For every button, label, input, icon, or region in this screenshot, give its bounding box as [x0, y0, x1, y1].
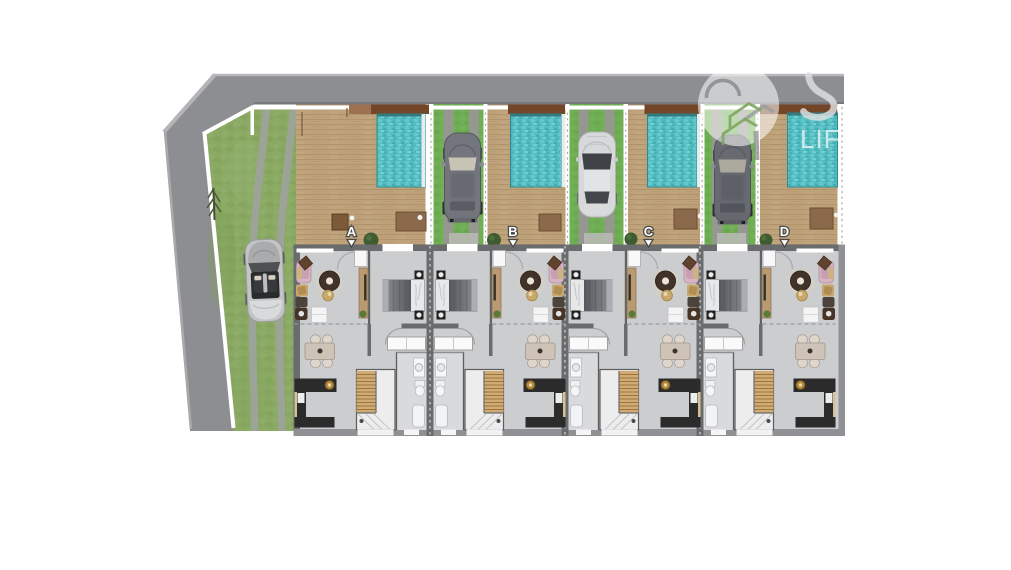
svg-text:C: C: [644, 224, 654, 239]
svg-text:A: A: [347, 224, 357, 239]
svg-text:B: B: [508, 224, 517, 239]
svg-text:D: D: [780, 224, 789, 239]
svg-text:LIF: LIF: [800, 124, 841, 154]
